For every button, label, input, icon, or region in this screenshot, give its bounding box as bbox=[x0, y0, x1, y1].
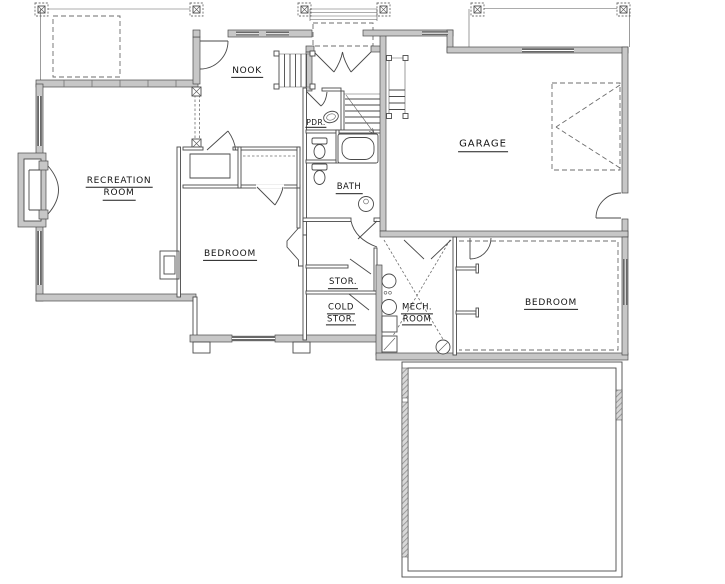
bedroom-left-walls bbox=[160, 131, 303, 338]
stair-basement-flight bbox=[336, 91, 382, 133]
room-label-storage: STOR. bbox=[328, 277, 358, 289]
room-label-bedroom-left: BEDROOM bbox=[203, 249, 257, 261]
deck-above-outline bbox=[36, 9, 198, 87]
garage-future-opening bbox=[552, 83, 620, 170]
south-foundation bbox=[190, 335, 378, 353]
room-label-cold-storage: COLD STOR. bbox=[326, 302, 356, 325]
entry-porch bbox=[306, 9, 381, 91]
stair-garage-landing bbox=[387, 56, 409, 119]
floor-plan-drawing bbox=[0, 0, 725, 584]
floor-plan-canvas: RECREATION ROOM NOOK PDR. BATH GARAGE BE… bbox=[0, 0, 725, 584]
room-label-garage: GARAGE bbox=[458, 138, 508, 152]
garage-porch-outline bbox=[469, 9, 630, 48]
room-label-pdr: PDR. bbox=[305, 118, 326, 128]
garage-walls bbox=[363, 30, 628, 237]
toilet-2 bbox=[312, 164, 327, 185]
room-label-nook: NOOK bbox=[231, 66, 263, 78]
beam-line bbox=[192, 87, 201, 148]
bedroom-right-walls bbox=[456, 237, 628, 355]
room-label-mech-room: MECH. ROOM bbox=[401, 302, 433, 325]
bathtub bbox=[338, 134, 378, 163]
mech-room bbox=[376, 237, 628, 360]
patio-foundation bbox=[402, 362, 622, 577]
bath-toilet bbox=[359, 197, 374, 212]
pier-posts bbox=[35, 3, 630, 16]
room-label-recreation-room: RECREATION ROOM bbox=[86, 176, 153, 201]
room-label-bedroom-right: BEDROOM bbox=[524, 298, 578, 310]
fireplace bbox=[18, 153, 59, 227]
toilet-1 bbox=[312, 138, 327, 159]
room-label-bath: BATH bbox=[336, 182, 363, 194]
